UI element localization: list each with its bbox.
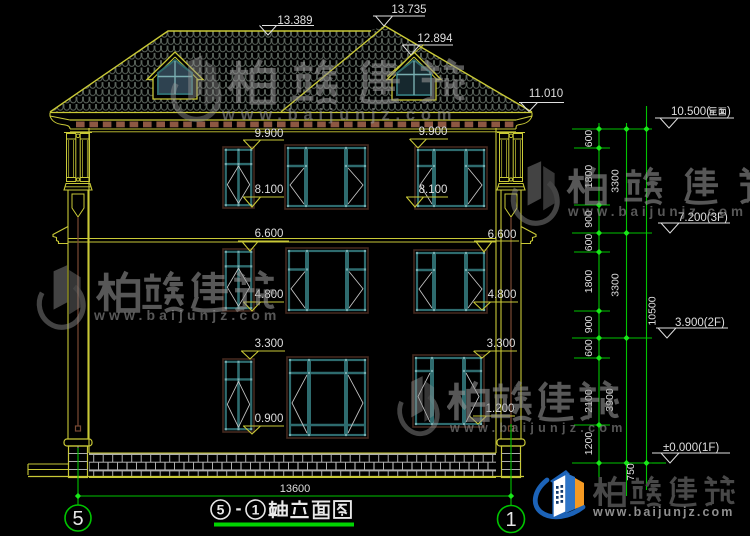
svg-text:3300: 3300	[610, 169, 622, 193]
svg-text:6.600: 6.600	[255, 228, 284, 240]
svg-text:-: -	[236, 498, 242, 518]
svg-text:11.010: 11.010	[529, 88, 563, 100]
svg-text:1.200: 1.200	[486, 403, 515, 415]
svg-text:3.300: 3.300	[487, 338, 516, 350]
svg-text:www.baijunjz.com: www.baijunjz.com	[567, 204, 747, 219]
svg-text:600: 600	[583, 339, 595, 357]
svg-text:www.baijunjz.com: www.baijunjz.com	[93, 307, 280, 323]
svg-text:9.900: 9.900	[419, 126, 448, 138]
svg-text:4.800: 4.800	[488, 289, 517, 301]
svg-text:10500: 10500	[647, 296, 659, 325]
svg-text:13.735: 13.735	[391, 4, 426, 16]
svg-text:8.100: 8.100	[419, 184, 448, 196]
svg-text:5: 5	[72, 508, 83, 530]
svg-text:6.600: 6.600	[488, 229, 517, 241]
svg-text:): )	[727, 106, 731, 118]
svg-text:www.baijunjz.com: www.baijunjz.com	[449, 421, 627, 435]
svg-text:600: 600	[583, 234, 595, 252]
svg-text:3300: 3300	[610, 273, 622, 297]
svg-text:1200: 1200	[583, 432, 595, 456]
svg-text:12.894: 12.894	[417, 33, 453, 45]
svg-text:1: 1	[505, 509, 516, 531]
svg-text:±0.000(1F): ±0.000(1F)	[663, 442, 719, 454]
svg-text:8.100: 8.100	[255, 184, 284, 196]
svg-text:750: 750	[625, 463, 637, 481]
svg-text:5: 5	[217, 502, 225, 518]
svg-text:3.900(2F): 3.900(2F)	[675, 317, 725, 329]
svg-text:900: 900	[583, 316, 595, 334]
svg-text:9.900: 9.900	[255, 128, 284, 140]
svg-text:0.900: 0.900	[255, 413, 284, 425]
svg-text:13600: 13600	[280, 483, 311, 495]
svg-text:1: 1	[252, 502, 260, 518]
svg-text:10.500(: 10.500(	[671, 106, 710, 118]
svg-text:600: 600	[583, 130, 595, 148]
svg-text:1800: 1800	[583, 270, 595, 294]
svg-text:3.300: 3.300	[255, 338, 284, 350]
svg-text:www.baijunjz.com: www.baijunjz.com	[592, 505, 734, 519]
svg-text:www.baijunjz.com: www.baijunjz.com	[221, 106, 457, 124]
